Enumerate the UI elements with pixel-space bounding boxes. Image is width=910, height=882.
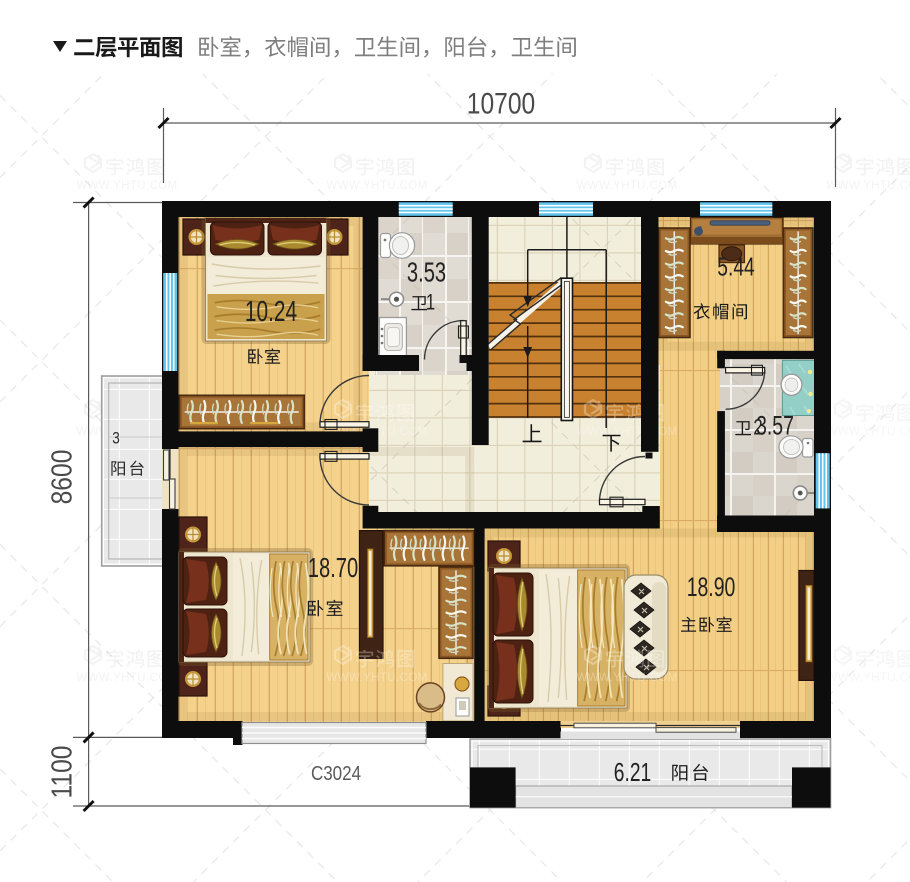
svg-text:WWW.YHTU.COM: WWW.YHTU.COM [826,180,910,192]
svg-text:WWW.YHTU.COM: WWW.YHTU.COM [76,180,177,192]
svg-text:3: 3 [112,429,120,448]
svg-text:3.57: 3.57 [756,410,794,440]
svg-text:6.21: 6.21 [614,757,651,787]
svg-text:WWW.YHTU.COM: WWW.YHTU.COM [576,180,677,192]
svg-text:8600: 8600 [46,450,78,505]
svg-text:C3024: C3024 [311,762,361,785]
svg-text:3.53: 3.53 [407,257,446,288]
svg-text:WWW.YHTU.COM: WWW.YHTU.COM [826,426,910,438]
svg-text:18.70: 18.70 [308,553,358,584]
svg-text:1: 1 [426,290,435,315]
svg-text:10.24: 10.24 [245,296,297,328]
svg-text:18.90: 18.90 [687,572,736,602]
svg-text:WWW.YHTU.COM: WWW.YHTU.COM [826,672,910,684]
svg-text:WWW.YHTU.COM: WWW.YHTU.COM [576,426,677,438]
svg-text:5.44: 5.44 [717,252,755,282]
svg-text:WWW.YHTU.COM: WWW.YHTU.COM [326,672,427,684]
svg-text:1100: 1100 [46,746,78,799]
svg-text:WWW.YHTU.COM: WWW.YHTU.COM [326,180,427,192]
svg-text:WWW.YHTU.COM: WWW.YHTU.COM [576,672,677,684]
svg-text:10700: 10700 [467,86,535,120]
